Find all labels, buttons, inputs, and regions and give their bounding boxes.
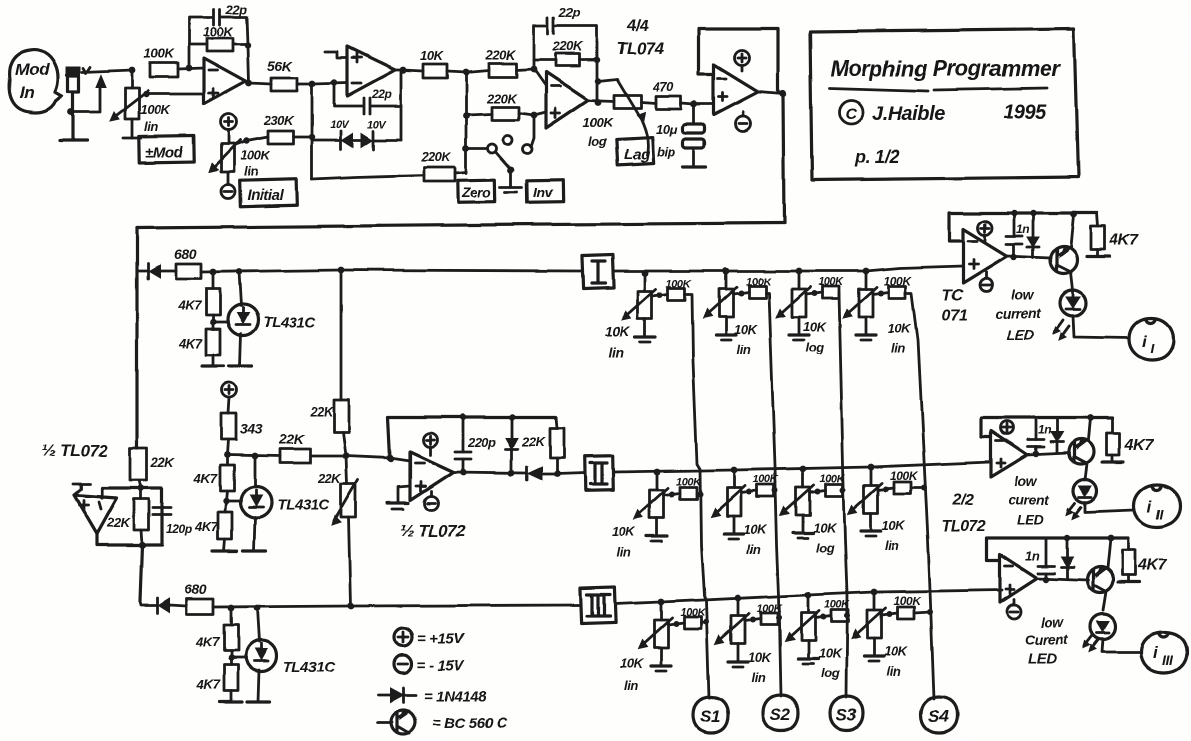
svg-text:4K7: 4K7 — [1109, 232, 1140, 249]
svg-text:071: 071 — [942, 307, 968, 324]
svg-text:100K: 100K — [753, 474, 779, 486]
svg-text:100K: 100K — [676, 476, 702, 488]
svg-text:lin: lin — [887, 663, 901, 678]
svg-text:4K7: 4K7 — [196, 677, 221, 692]
svg-text:100K: 100K — [203, 24, 234, 39]
svg-text:10K: 10K — [803, 319, 828, 334]
svg-text:100K: 100K — [746, 276, 772, 288]
svg-text:100K: 100K — [757, 603, 783, 615]
svg-text:current: current — [995, 306, 1042, 322]
svg-text:Lag: Lag — [624, 147, 650, 164]
svg-text:2/2: 2/2 — [951, 492, 974, 509]
svg-text:lin: lin — [244, 164, 258, 179]
svg-text:TL431C: TL431C — [277, 497, 330, 514]
svg-text:p. 1/2: p. 1/2 — [854, 147, 899, 167]
svg-text:22K: 22K — [317, 471, 343, 486]
svg-text:S2: S2 — [770, 705, 791, 724]
svg-text:curent: curent — [1008, 492, 1050, 508]
svg-text:10K: 10K — [813, 520, 838, 535]
svg-text:S1: S1 — [700, 707, 720, 726]
svg-text:10K: 10K — [888, 321, 913, 336]
svg-text:Inv: Inv — [533, 184, 554, 200]
svg-text:½ TL072: ½ TL072 — [42, 441, 108, 460]
svg-text:1995: 1995 — [1003, 101, 1047, 123]
svg-text:lin: lin — [891, 341, 905, 356]
svg-text:680: 680 — [184, 581, 207, 597]
svg-text:In: In — [20, 83, 34, 102]
svg-text:120p: 120p — [166, 522, 192, 536]
svg-text:22K: 22K — [521, 434, 547, 449]
svg-text:22K: 22K — [309, 404, 335, 419]
svg-text:10K: 10K — [748, 650, 773, 665]
svg-text:220K: 220K — [486, 91, 518, 106]
svg-text:100K: 100K — [884, 274, 913, 288]
svg-text:LED: LED — [1007, 327, 1034, 343]
svg-text:10K: 10K — [612, 524, 637, 539]
svg-text:= BC 560 C: = BC 560 C — [432, 715, 508, 732]
svg-text:4K7: 4K7 — [178, 336, 203, 351]
svg-text:Zero: Zero — [461, 184, 492, 200]
svg-text:22K: 22K — [278, 431, 305, 447]
svg-text:22p: 22p — [225, 2, 248, 17]
svg-text:22K: 22K — [106, 515, 132, 530]
svg-text:10K: 10K — [884, 643, 909, 658]
svg-text:680: 680 — [174, 246, 197, 262]
svg-text:J.Haible: J.Haible — [872, 103, 946, 125]
svg-text:low: low — [1041, 614, 1065, 630]
svg-text:10μ: 10μ — [656, 122, 678, 137]
svg-text:TL072: TL072 — [941, 518, 986, 535]
svg-text:low: low — [1014, 473, 1038, 489]
svg-text:10K: 10K — [734, 322, 759, 337]
svg-text:1n: 1n — [1038, 423, 1051, 437]
svg-text:lin: lin — [737, 342, 751, 357]
svg-text:Mod: Mod — [15, 60, 50, 79]
svg-text:10K: 10K — [605, 323, 631, 339]
svg-text:TL074: TL074 — [616, 39, 664, 58]
svg-text:LED: LED — [1028, 650, 1057, 667]
svg-text:Curent: Curent — [1025, 631, 1069, 647]
svg-text:LED: LED — [1017, 512, 1044, 528]
svg-text:10V: 10V — [367, 119, 387, 131]
svg-text:low: low — [1011, 287, 1035, 303]
svg-text:100K: 100K — [893, 594, 922, 608]
svg-text:lin: lin — [144, 119, 158, 134]
svg-text:lin: lin — [624, 678, 638, 693]
svg-text:Morphing Programmer: Morphing Programmer — [830, 56, 1061, 81]
svg-text:100K: 100K — [818, 276, 844, 288]
svg-text:22K: 22K — [150, 455, 176, 470]
svg-text:4K7: 4K7 — [177, 298, 202, 313]
svg-text:= +15V: = +15V — [417, 630, 465, 647]
svg-text:10K: 10K — [744, 522, 769, 537]
svg-text:lin: lin — [747, 542, 761, 557]
svg-text:log: log — [588, 134, 607, 149]
svg-text:100K: 100K — [824, 599, 850, 611]
svg-text:lin: lin — [609, 344, 624, 360]
svg-text:III: III — [1162, 652, 1174, 668]
svg-text:lin: lin — [617, 545, 631, 560]
svg-text:1n: 1n — [1016, 222, 1029, 236]
svg-text:100K: 100K — [240, 148, 271, 163]
svg-text:Initial: Initial — [247, 187, 285, 204]
svg-text:log: log — [816, 540, 835, 555]
svg-text:100K: 100K — [820, 473, 846, 485]
svg-text:100K: 100K — [144, 46, 175, 61]
svg-text:4K7: 4K7 — [195, 634, 220, 649]
svg-text:100K: 100K — [583, 115, 614, 130]
svg-text:10K: 10K — [620, 656, 645, 671]
svg-text:4K7: 4K7 — [1137, 557, 1168, 574]
svg-text:230K: 230K — [263, 113, 295, 128]
svg-text:= 1N4148: = 1N4148 — [424, 688, 487, 705]
svg-text:220K: 220K — [552, 39, 584, 54]
svg-text:10K: 10K — [420, 48, 445, 63]
svg-text:220K: 220K — [420, 149, 452, 164]
svg-text:100K: 100K — [666, 278, 692, 290]
svg-text:100K: 100K — [140, 102, 171, 117]
svg-text:4K7: 4K7 — [1123, 437, 1154, 454]
svg-text:= - 15V: = - 15V — [417, 657, 465, 674]
svg-text:10K: 10K — [882, 518, 907, 533]
svg-text:10K: 10K — [818, 646, 843, 661]
svg-text:4/4: 4/4 — [626, 18, 649, 35]
svg-text:343: 343 — [240, 421, 263, 437]
svg-text:1n: 1n — [1025, 548, 1040, 563]
svg-text:lin: lin — [885, 538, 899, 553]
svg-text:TL431C: TL431C — [283, 659, 336, 676]
svg-text:±Mod: ±Mod — [145, 144, 184, 161]
svg-text:4K7: 4K7 — [194, 519, 219, 534]
svg-text:½ TL072: ½ TL072 — [400, 521, 466, 540]
svg-text:100K: 100K — [890, 469, 919, 483]
svg-text:log: log — [806, 340, 825, 355]
svg-text:10V: 10V — [330, 119, 350, 131]
svg-text:S3: S3 — [836, 705, 857, 724]
svg-text:S4: S4 — [928, 707, 949, 726]
svg-text:4K7: 4K7 — [193, 471, 218, 486]
svg-text:100K: 100K — [680, 607, 706, 619]
svg-text:220p: 220p — [467, 435, 496, 450]
svg-text:22p: 22p — [371, 87, 392, 101]
svg-text:log: log — [821, 666, 840, 681]
svg-text:470: 470 — [652, 79, 675, 94]
svg-text:lin: lin — [751, 670, 765, 685]
svg-text:22p: 22p — [558, 5, 581, 20]
svg-text:56K: 56K — [267, 58, 293, 74]
svg-text:C: C — [845, 106, 857, 123]
svg-text:TC: TC — [942, 287, 963, 304]
svg-text:220K: 220K — [485, 47, 517, 62]
svg-text:TL431C: TL431C — [263, 314, 316, 331]
svg-text:bip: bip — [657, 145, 676, 160]
